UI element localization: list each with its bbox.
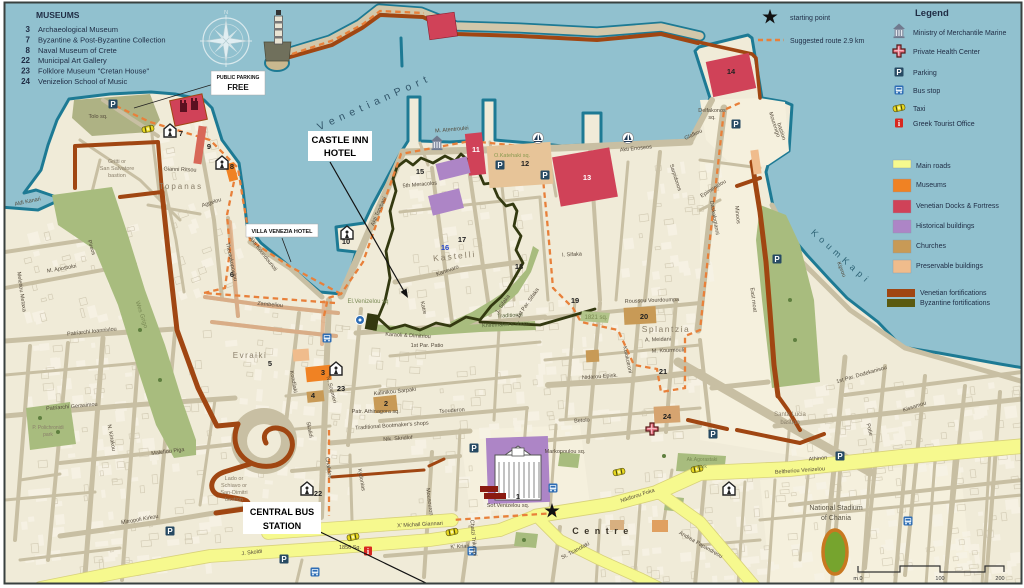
svg-text:Taxi: Taxi — [913, 106, 926, 113]
svg-text:2: 2 — [384, 399, 388, 408]
svg-text:18: 18 — [515, 262, 523, 271]
svg-text:8: 8 — [230, 162, 234, 171]
svg-text:Bus stop: Bus stop — [913, 88, 940, 95]
svg-text:bastion: bastion — [225, 497, 243, 503]
svg-text:P: P — [710, 430, 716, 439]
svg-text:P: P — [497, 161, 503, 170]
svg-text:P: P — [542, 171, 548, 180]
svg-text:P: P — [110, 100, 116, 109]
svg-text:P: P — [837, 452, 843, 461]
svg-text:1821 sq.: 1821 sq. — [584, 315, 607, 321]
svg-text:National Stadium: National Stadium — [809, 505, 862, 512]
svg-text:Byzantine fortifications: Byzantine fortifications — [920, 300, 991, 307]
svg-text:10: 10 — [342, 237, 350, 246]
svg-text:8: 8 — [26, 46, 31, 55]
svg-text:K' Kriari: K' Kriari — [450, 544, 469, 551]
svg-text:Ministry of Merchantile Marine: Ministry of Merchantile Marine — [913, 30, 1006, 37]
svg-text:Main roads: Main roads — [916, 163, 951, 170]
svg-text:23: 23 — [337, 384, 345, 393]
svg-text:Naval Museum of Crete: Naval Museum of Crete — [38, 46, 117, 55]
svg-text:park: park — [697, 464, 707, 470]
svg-text:22: 22 — [21, 56, 30, 65]
svg-text:Museums: Museums — [916, 182, 947, 189]
svg-text:P: P — [471, 444, 477, 453]
svg-text:P: P — [167, 527, 173, 536]
svg-text:Preservable buildings: Preservable buildings — [916, 263, 983, 270]
svg-text:HOTEL: HOTEL — [324, 148, 356, 159]
svg-text:Sof.Venizelou sq.: Sof.Venizelou sq. — [487, 503, 530, 509]
svg-text:Byzantine & Post-Byzantine Col: Byzantine & Post-Byzantine Collection — [38, 35, 166, 44]
svg-text:Tolo sq.: Tolo sq. — [89, 114, 108, 120]
svg-text:N: N — [224, 10, 228, 16]
svg-text:Venetian Docks & Fortress: Venetian Docks & Fortress — [916, 203, 999, 210]
svg-text:15: 15 — [416, 167, 424, 176]
svg-text:Historical buildings: Historical buildings — [916, 223, 975, 230]
svg-text:Gianni Ritsou: Gianni Ritsou — [163, 166, 196, 173]
svg-text:Santa Lucia: Santa Lucia — [774, 412, 806, 418]
svg-text:Schiavo or: Schiavo or — [221, 483, 247, 489]
svg-text:19: 19 — [571, 296, 579, 305]
svg-text:CASTLE INN: CASTLE INN — [312, 135, 369, 146]
svg-text:Folklore Museum "Cretan House": Folklore Museum "Cretan House" — [38, 67, 150, 76]
svg-text:P: P — [896, 68, 902, 77]
svg-text:20: 20 — [640, 312, 648, 321]
svg-text:PUBLIC PARKING: PUBLIC PARKING — [217, 75, 260, 81]
svg-text:San Salvatore: San Salvatore — [100, 166, 135, 172]
svg-text:C e n t r e: C e n t r e — [572, 526, 630, 536]
svg-text:Topanas: Topanas — [159, 182, 203, 191]
svg-text:100: 100 — [935, 576, 944, 582]
svg-text:VILLA VENEZIA HOTEL: VILLA VENEZIA HOTEL — [251, 229, 313, 235]
svg-text:Suggested route 2.9 km: Suggested route 2.9 km — [790, 38, 864, 45]
svg-text:200: 200 — [995, 576, 1004, 582]
svg-text:9: 9 — [207, 142, 211, 151]
svg-text:21: 21 — [659, 367, 667, 376]
svg-text:CENTRAL BUS: CENTRAL BUS — [250, 507, 314, 517]
svg-text:P. Polichronidi: P. Polichronidi — [32, 425, 63, 431]
svg-text:Evraiki: Evraiki — [233, 351, 268, 360]
svg-text:17: 17 — [458, 235, 466, 244]
svg-text:STATION: STATION — [263, 521, 301, 531]
svg-text:Parking: Parking — [913, 70, 937, 77]
svg-text:Churches: Churches — [916, 243, 946, 250]
svg-text:11: 11 — [472, 145, 480, 154]
svg-text:El.Venizelou sq: El.Venizelou sq — [347, 299, 388, 305]
svg-text:MUSEUMS: MUSEUMS — [36, 10, 80, 20]
svg-text:Patr. Athinagora sq: Patr. Athinagora sq — [352, 409, 398, 415]
svg-text:sq.: sq. — [708, 115, 716, 121]
svg-text:bastion: bastion — [780, 420, 799, 426]
svg-text:1st Par. Patio: 1st Par. Patio — [411, 343, 444, 349]
svg-text:P: P — [774, 255, 780, 264]
svg-text:13: 13 — [583, 173, 591, 182]
svg-text:Gritti or: Gritti or — [108, 159, 126, 165]
svg-text:23: 23 — [21, 67, 30, 76]
svg-text:24: 24 — [21, 77, 30, 86]
svg-text:3: 3 — [321, 368, 325, 377]
svg-text:Lado or: Lado or — [225, 476, 244, 482]
svg-text:Splantzia: Splantzia — [642, 324, 690, 334]
svg-text:of Chania: of Chania — [821, 515, 851, 522]
svg-text:12: 12 — [521, 159, 529, 168]
svg-text:16: 16 — [441, 243, 449, 252]
svg-text:Ak.Agorastaki: Ak.Agorastaki — [687, 457, 718, 463]
svg-text:bastion: bastion — [108, 173, 126, 179]
svg-text:7: 7 — [179, 129, 183, 138]
svg-text:San-Dimitri: San-Dimitri — [220, 490, 247, 496]
svg-text:Greek Tourist Office: Greek Tourist Office — [913, 121, 975, 128]
svg-text:22: 22 — [314, 489, 322, 498]
svg-text:P: P — [281, 555, 287, 564]
svg-text:1: 1 — [516, 492, 520, 501]
svg-text:Private Health Center: Private Health Center — [913, 49, 981, 56]
svg-text:Municipal Art Gallery: Municipal Art Gallery — [38, 56, 107, 65]
svg-text:Legend: Legend — [915, 8, 949, 19]
svg-text:Archaeological Museum: Archaeological Museum — [38, 25, 118, 34]
svg-text:A. Meidani: A. Meidani — [645, 337, 671, 344]
svg-text:Delfakonos: Delfakonos — [698, 108, 726, 114]
svg-text:3: 3 — [26, 25, 31, 34]
svg-text:m 0: m 0 — [853, 576, 862, 582]
svg-text:Venizelion School of Music: Venizelion School of Music — [38, 77, 127, 86]
svg-text:14: 14 — [727, 67, 736, 76]
svg-text:FREE: FREE — [227, 83, 249, 92]
svg-text:24: 24 — [663, 412, 672, 421]
svg-text:P: P — [733, 120, 739, 129]
svg-text:I. Sifaka: I. Sifaka — [562, 251, 583, 258]
svg-text:park: park — [43, 432, 53, 438]
svg-text:5: 5 — [268, 359, 272, 368]
svg-text:Betolo: Betolo — [574, 417, 590, 424]
svg-text:starting point: starting point — [790, 15, 830, 22]
svg-text:Venetian fortifications: Venetian fortifications — [920, 290, 987, 297]
svg-text:Markopoulou sq.: Markopoulou sq. — [545, 449, 586, 455]
svg-text:M. Kourmouli: M. Kourmouli — [652, 347, 685, 354]
svg-text:7: 7 — [26, 35, 31, 44]
